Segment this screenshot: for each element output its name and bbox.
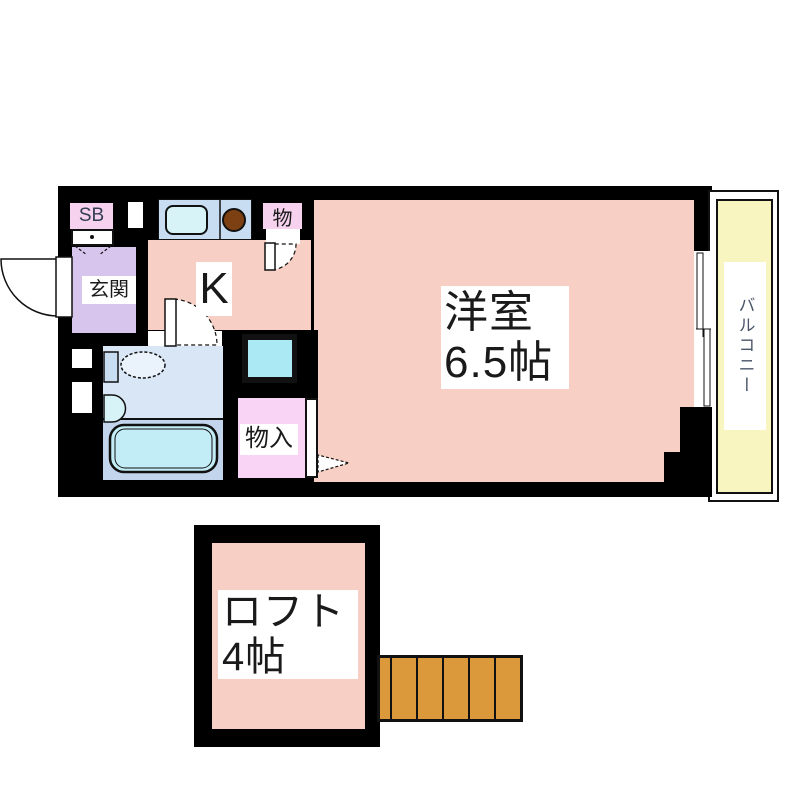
shoe-box-door-marks (75, 246, 111, 255)
loft-size: 4帖 (222, 635, 345, 680)
entrance-door-leaf (56, 257, 72, 317)
stove-burner-icon (223, 209, 245, 231)
toilet-tank-icon (104, 352, 118, 382)
entrance-label: 玄関 (82, 276, 136, 304)
entrance-door-swing (1, 259, 58, 316)
loft-label: ロフト 4帖 (218, 590, 358, 679)
western-room-name: 洋室 (444, 288, 553, 338)
closet-door-arrow (318, 455, 349, 472)
storage-door-leaf (265, 243, 275, 270)
sliding-window-panel (697, 253, 703, 329)
kitchen-sink-icon (166, 206, 207, 234)
toilet-bowl-icon (121, 352, 165, 378)
shoe-box-knob (90, 235, 94, 239)
sliding-window-panel (704, 329, 710, 406)
loft-name: ロフト (222, 590, 345, 635)
bath-door-leaf (165, 299, 176, 346)
bathtub-icon (110, 425, 217, 472)
balcony-label: バルコニー (724, 262, 766, 430)
closet-label: 物入 (240, 424, 298, 455)
western-room-size: 6.5帖 (444, 338, 553, 388)
fixtures-overlay (0, 0, 800, 800)
floor-plan-canvas: バルコニー SB 物 (0, 0, 800, 800)
western-room-label: 洋室 6.5帖 (441, 286, 569, 389)
wash-basin-icon (104, 395, 126, 422)
kitchen-label: K (196, 262, 232, 316)
